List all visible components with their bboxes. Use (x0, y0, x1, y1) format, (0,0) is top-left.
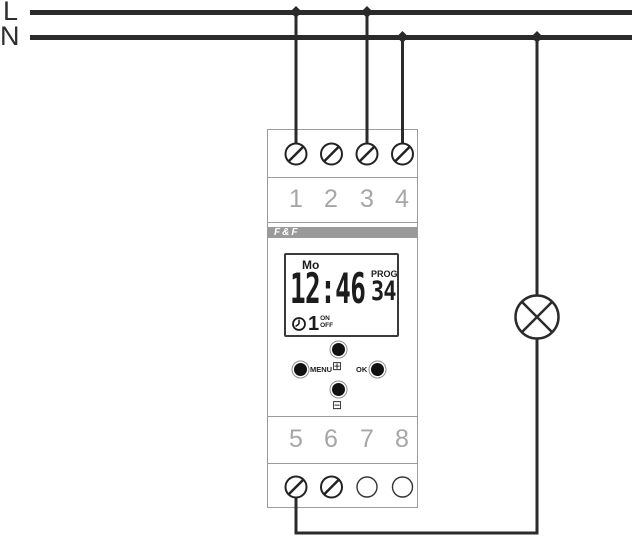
lamp-icon (516, 296, 559, 339)
wire-terminal5-to-lamp (296, 337, 537, 533)
screw-terminal-3 (357, 144, 378, 165)
terminal-8 (393, 477, 413, 497)
wiring-diagram: L N F&F 1 2 3 4 5 6 7 8 Mo 12:46 PROG 34 (0, 0, 636, 545)
junction-dot (531, 31, 543, 43)
junction-dot (397, 31, 409, 43)
screw-terminal-2 (321, 144, 342, 165)
junction-dot (361, 6, 373, 18)
screw-terminal-6 (321, 477, 342, 498)
wire-overlay (0, 0, 636, 545)
terminal-7 (357, 477, 377, 497)
screw-terminal-4 (392, 144, 413, 165)
screw-terminal-5 (286, 477, 307, 498)
junction-dot (290, 6, 302, 18)
screw-terminal-1 (286, 144, 307, 165)
